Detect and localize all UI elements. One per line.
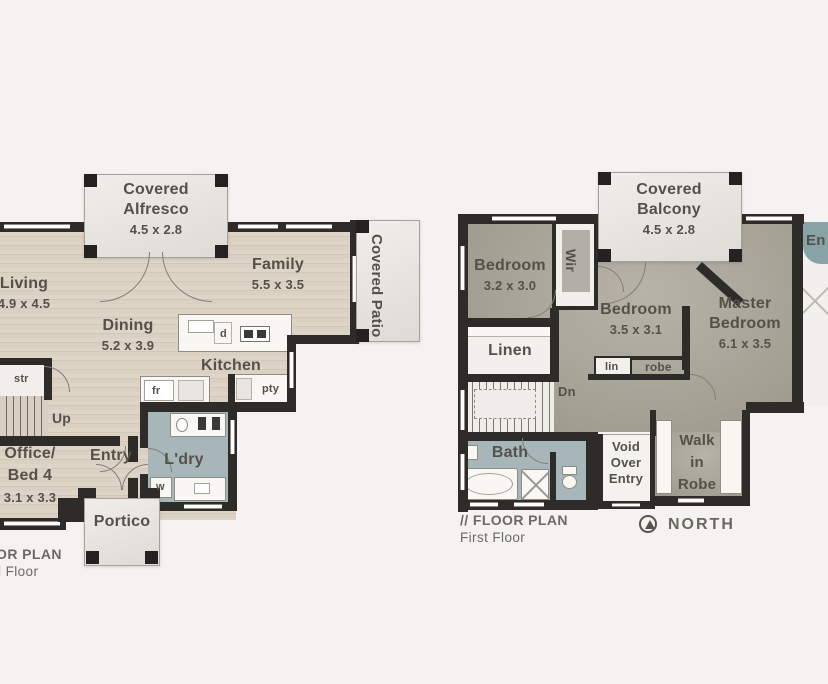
ff-plan-annotation-subtitle: First Floor — [460, 530, 525, 545]
wall-corner-post — [215, 174, 228, 187]
room-dims: 3.2 x 3.0 — [474, 276, 546, 296]
wall-corner-post — [145, 551, 158, 564]
gf-stairs — [0, 396, 48, 440]
cooktop-burner — [244, 330, 253, 338]
gf-appliance-nook — [178, 380, 204, 401]
ff-wirobe-closet — [720, 420, 742, 494]
room-dims: 6.1 x 3.5 — [709, 334, 781, 354]
window — [514, 502, 544, 507]
room-name: Bed 4 — [4, 465, 56, 487]
wall-corner-post — [729, 172, 742, 185]
bathtub-basin — [465, 473, 513, 495]
window — [460, 246, 465, 290]
closet-label-robe: robe — [645, 361, 672, 373]
stairs-up-label: Up — [52, 410, 71, 426]
toilet-icon — [176, 418, 188, 432]
window — [470, 502, 498, 507]
room-label-laundry: L'dry — [164, 450, 203, 470]
wall-segment — [458, 374, 558, 382]
room-label-ensuite-partial: En — [806, 232, 826, 249]
room-label-living: Living 4.9 x 4.5 — [0, 274, 50, 314]
room-dims: 3.5 x 3.1 — [600, 320, 672, 340]
room-label-bath: Bath — [492, 443, 528, 463]
linen-shelf — [466, 326, 550, 337]
north-compass-icon — [639, 515, 657, 533]
window — [746, 216, 792, 221]
window — [460, 390, 465, 430]
room-dims: 5.5 x 3.5 — [252, 275, 304, 295]
wall-segment — [588, 374, 690, 380]
room-name: Walk — [678, 430, 716, 452]
closet-label-lin: lin — [605, 361, 618, 373]
wall-segment — [742, 410, 750, 506]
gf-plan-annotation-title: // FLOOR PLAN — [0, 546, 62, 562]
room-name: Void — [609, 439, 643, 455]
room-name: Family — [252, 255, 304, 275]
room-name: Entry — [609, 471, 643, 487]
wall-corner-post — [598, 249, 611, 262]
room-name: Bedroom — [474, 256, 546, 276]
wall-corner-post — [215, 245, 228, 258]
fixture-label-fridge: fr — [152, 385, 160, 397]
room-label-dining: Dining 5.2 x 3.9 — [102, 316, 154, 356]
room-name: Living — [0, 274, 50, 294]
room-name: Bedroom — [709, 314, 781, 334]
wall-segment — [550, 308, 559, 382]
wall-segment — [287, 335, 359, 344]
room-label-covered-patio: Covered Patio — [368, 234, 410, 330]
room-label-walk-in-robe: Walk in Robe — [678, 430, 716, 496]
gf-bench-item — [198, 417, 206, 430]
gf-pantry-shelf — [236, 378, 252, 400]
room-label-office-bed4: Office/ Bed 4 3.1 x 3.3 — [4, 443, 56, 509]
wall-segment — [598, 434, 603, 508]
fixture-label-pantry: pty — [262, 383, 279, 395]
room-name: Office/ — [4, 443, 56, 465]
window — [460, 454, 465, 490]
window — [678, 498, 704, 503]
room-label-portico: Portico — [94, 512, 151, 532]
wall-corner-post — [729, 249, 742, 262]
wall-corner-post — [356, 220, 369, 233]
room-name: Alfresco — [123, 200, 189, 220]
wall-segment — [140, 410, 148, 448]
wall-segment — [650, 410, 656, 436]
room-name: Robe — [678, 474, 716, 496]
window — [492, 216, 556, 221]
ff-stairs — [466, 378, 554, 432]
room-name: Covered — [636, 180, 701, 200]
ff-wirobe-closet — [656, 420, 672, 494]
room-dims: 4.5 x 2.8 — [636, 220, 701, 240]
room-name: Bedroom — [600, 300, 672, 320]
gf-plan-annotation-subtitle: Ground Floor — [0, 564, 38, 579]
sink-icon — [194, 483, 210, 494]
window — [612, 503, 640, 507]
window — [4, 224, 70, 229]
shower-icon — [521, 469, 549, 500]
room-name: Balcony — [636, 200, 701, 220]
room-name: in — [678, 452, 716, 474]
room-label-bedroom3: Bedroom 3.5 x 3.1 — [600, 300, 672, 340]
toilet-icon — [562, 466, 577, 475]
ff-ensuite-floor — [803, 222, 828, 406]
floor-plan-image: Covered Alfresco 4.5 x 2.8 Living 4.9 x … — [0, 0, 828, 684]
window — [184, 504, 222, 509]
room-label-void: Void Over Entry — [609, 439, 643, 487]
room-name: Master — [709, 294, 781, 314]
wall-corner-post — [86, 551, 99, 564]
shower-screen-line — [803, 282, 828, 320]
wall-corner-post — [598, 172, 611, 185]
fixture-label-store: str — [14, 373, 29, 385]
wall-segment — [550, 452, 556, 502]
wall-segment — [140, 402, 296, 412]
room-name: Over — [609, 455, 643, 471]
cooktop-burner — [257, 330, 266, 338]
room-name: Covered — [123, 180, 189, 200]
room-label-family: Family 5.5 x 3.5 — [252, 255, 304, 295]
window — [289, 352, 294, 388]
room-label-alfresco: Covered Alfresco 4.5 x 2.8 — [123, 180, 189, 240]
room-name: Dining — [102, 316, 154, 336]
room-label-entry: Entry — [90, 446, 132, 466]
window — [238, 224, 278, 229]
room-dims: 4.9 x 4.5 — [0, 294, 50, 314]
wall-corner-post — [84, 174, 97, 187]
stairs-dn-label: Dn — [558, 384, 576, 399]
room-dims: 5.2 x 3.9 — [102, 336, 154, 356]
toilet-icon — [562, 475, 577, 489]
gf-bench-item — [212, 417, 220, 430]
window — [286, 224, 332, 229]
window — [4, 521, 60, 526]
ff-plan-annotation-title: // FLOOR PLAN — [460, 512, 568, 528]
wall-segment — [586, 432, 598, 510]
ff-bg-patch — [746, 413, 798, 433]
fixture-label-washer: w — [156, 481, 165, 493]
room-dims: 3.1 x 3.3 — [4, 487, 56, 509]
fixture-label-dishwasher: d — [220, 328, 227, 340]
room-label-master: Master Bedroom 6.1 x 3.5 — [709, 294, 781, 354]
stair-rail-dashed — [474, 389, 536, 419]
wall-segment — [228, 374, 235, 404]
wall-corner-post — [84, 245, 97, 258]
sink-icon — [188, 320, 214, 333]
north-label: NORTH — [668, 516, 735, 534]
wall-segment — [0, 358, 50, 365]
north-arrow — [645, 520, 655, 529]
room-label-kitchen: Kitchen — [201, 356, 261, 376]
room-label-balcony: Covered Balcony 4.5 x 2.8 — [636, 180, 701, 240]
room-dims: 4.5 x 2.8 — [123, 220, 189, 240]
closet-label-wir: Wir — [563, 234, 589, 288]
window — [230, 420, 235, 454]
room-label-linen: Linen — [488, 341, 532, 361]
wall-segment — [458, 318, 558, 327]
bathtub-icon — [460, 468, 518, 500]
room-label-bedroom2: Bedroom 3.2 x 3.0 — [474, 256, 546, 296]
wall-segment — [792, 214, 803, 406]
